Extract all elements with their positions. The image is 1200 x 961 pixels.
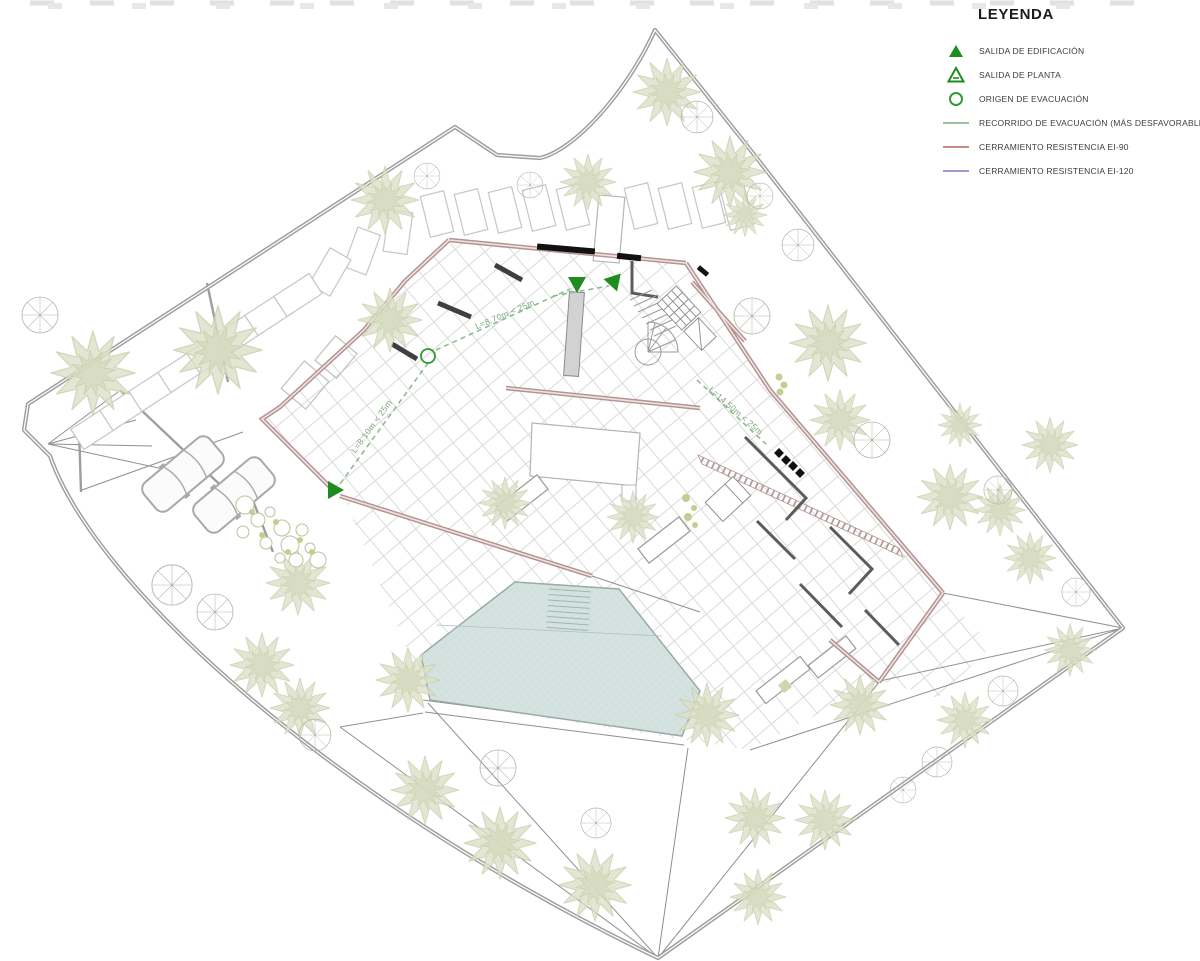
tree	[1044, 624, 1096, 676]
ei120-line-icon	[933, 166, 979, 176]
tree	[464, 807, 536, 879]
legend-item-label: ORIGEN DE EVACUACIÓN	[979, 94, 1089, 104]
legend-item-salida-edificacion: SALIDA DE EDIFICACIÓN	[933, 39, 1199, 63]
legend-item-origen-evacuacion: ORIGEN DE EVACUACIÓN	[933, 87, 1199, 111]
tree	[633, 58, 701, 126]
tree	[1004, 532, 1056, 584]
legend-item-ei120: CERRAMIENTO RESISTENCIA EI-120	[933, 159, 1199, 183]
floor-exit-icon	[933, 66, 979, 84]
tree-outline	[22, 297, 58, 333]
legend-item-label: SALIDA DE EDIFICACIÓN	[979, 46, 1084, 56]
legend-item-label: SALIDA DE PLANTA	[979, 70, 1061, 80]
drawing-page: L=8.70m < 25m L=8.10m < 25m L=14.50m < 2…	[0, 0, 1200, 961]
tree-outline	[984, 476, 1012, 504]
tree-outline	[681, 101, 713, 133]
tree	[725, 788, 785, 848]
legend-item-ei90: CERRAMIENTO RESISTENCIA EI-90	[933, 135, 1199, 159]
tree	[790, 305, 866, 381]
legend-item-label: CERRAMIENTO RESISTENCIA EI-90	[979, 142, 1129, 152]
building-exit-icon	[933, 42, 979, 60]
tree-outline	[734, 298, 770, 334]
tree-outline	[414, 163, 440, 189]
legend-item-label: CERRAMIENTO RESISTENCIA EI-120	[979, 166, 1134, 176]
tree	[810, 390, 870, 450]
tree-outline	[152, 565, 192, 605]
tree	[937, 692, 993, 748]
tree	[795, 790, 855, 850]
legend-item-salida-planta: SALIDA DE PLANTA	[933, 63, 1199, 87]
tree	[730, 869, 786, 925]
tree-outline	[517, 172, 543, 198]
legend: LEYENDA SALIDA DE EDIFICACIÓN SALIDA DE …	[933, 6, 1199, 183]
tree-outline	[747, 183, 773, 209]
tree-outline	[1062, 578, 1090, 606]
tree	[917, 464, 983, 530]
tree-outline	[922, 747, 952, 777]
legend-item-recorrido: RECORRIDO DE EVACUACIÓN (MÁS DESFAVORABL…	[933, 111, 1199, 135]
legend-item-label: RECORRIDO DE EVACUACIÓN (MÁS DESFAVORABL…	[979, 118, 1200, 128]
tree-outline	[854, 422, 890, 458]
tree-outline	[988, 676, 1018, 706]
route-line-icon	[933, 118, 979, 128]
evacuation-origin-icon	[933, 90, 979, 108]
tree-outline	[782, 229, 814, 261]
tree-outline	[197, 594, 233, 630]
tree-outline	[890, 777, 916, 803]
legend-title: LEYENDA	[978, 6, 1199, 23]
tree-outline	[299, 719, 331, 751]
ei90-line-icon	[933, 142, 979, 152]
tree-outline	[581, 808, 611, 838]
tree-outline	[480, 750, 516, 786]
tree	[1022, 417, 1078, 473]
